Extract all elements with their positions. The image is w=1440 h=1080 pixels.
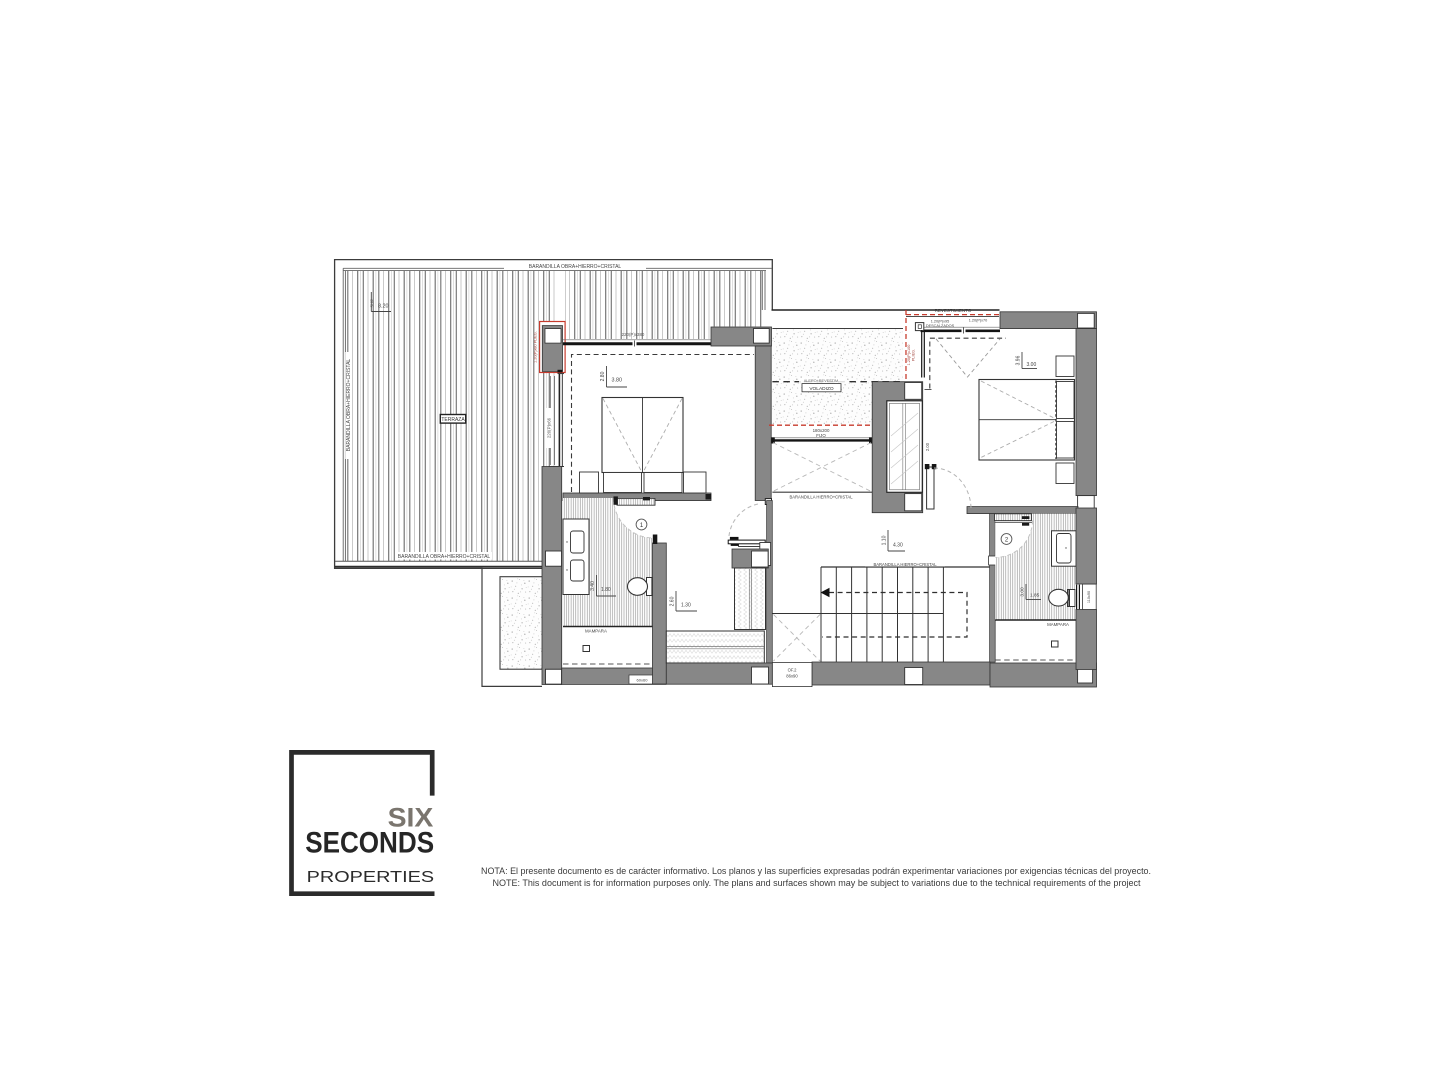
svg-text:8.20: 8.20	[378, 304, 389, 310]
svg-text:2.80: 2.80	[600, 371, 606, 381]
svg-text:BARANDILLA OBRA+HIERRO+CRISTAL: BARANDILLA OBRA+HIERRO+CRISTAL	[346, 359, 352, 452]
svg-text:4.30: 4.30	[893, 543, 903, 549]
svg-text:BARANDILLA HIERRO+CRISTAL: BARANDILLA HIERRO+CRISTAL	[873, 562, 937, 567]
svg-text:FIJO: FIJO	[816, 433, 826, 438]
svg-text:1.85: 1.85	[1030, 593, 1040, 599]
svg-text:1.20(P)x95: 1.20(P)x95	[931, 319, 950, 323]
svg-text:60x60: 60x60	[637, 678, 649, 683]
svg-text:3.00: 3.00	[1020, 587, 1026, 597]
svg-text:BARANDILLA OBRA+HIERRO+CRISTAL: BARANDILLA OBRA+HIERRO+CRISTAL	[529, 264, 622, 270]
svg-text:110x90: 110x90	[1087, 591, 1091, 603]
svg-text:MAMPARA: MAMPARA	[1047, 622, 1069, 627]
svg-text:1.80: 1.80	[601, 587, 611, 593]
svg-text:2.60: 2.60	[670, 596, 676, 606]
svg-text:SUP.: SUP.	[370, 298, 375, 307]
svg-text:NOTE: This document is for inf: NOTE: This document is for information p…	[493, 878, 1142, 888]
svg-text:3.80: 3.80	[612, 378, 623, 384]
svg-text:220(P)x380: 220(P)x380	[622, 332, 645, 337]
svg-text:1.30: 1.30	[681, 603, 691, 609]
svg-text:220(P)x66: 220(P)x66	[547, 417, 552, 438]
svg-text:REVESTIMIENTO: REVESTIMIENTO	[935, 308, 972, 313]
svg-text:PLIEG.: PLIEG.	[912, 349, 916, 361]
svg-text:TERRAZA: TERRAZA	[441, 417, 465, 423]
svg-text:PROPERTIES: PROPERTIES	[307, 869, 434, 886]
svg-text:ALERO+REVESTIM.: ALERO+REVESTIM.	[804, 379, 840, 383]
svg-text:1.10: 1.10	[882, 535, 888, 545]
svg-text:NOTA: El presente documento es: NOTA: El presente documento es de caráct…	[481, 866, 1151, 876]
svg-text:BARANDILLA HIERRO+CRISTAL: BARANDILLA HIERRO+CRISTAL	[789, 494, 853, 499]
svg-text:1.20(P)x70: 1.20(P)x70	[969, 318, 988, 322]
svg-text:OF.2: OF.2	[788, 668, 798, 673]
svg-text:BARANDILLA OBRA+HIERRO+CRISTAL: BARANDILLA OBRA+HIERRO+CRISTAL	[398, 554, 491, 560]
svg-text:SECONDS: SECONDS	[305, 827, 434, 860]
svg-text:2.00: 2.00	[925, 442, 930, 451]
svg-text:3.40: 3.40	[590, 581, 596, 591]
svg-text:1.20(P)x80 PLIEG.: 1.20(P)x80 PLIEG.	[534, 331, 538, 363]
svg-text:VOLADIZO: VOLADIZO	[809, 386, 834, 392]
svg-text:3.00: 3.00	[1027, 362, 1037, 368]
svg-text:3.96: 3.96	[1016, 355, 1022, 365]
svg-text:1.20(P)x100: 1.20(P)x100	[907, 345, 911, 366]
svg-text:86x90: 86x90	[786, 674, 798, 679]
svg-text:MAMPARA: MAMPARA	[585, 629, 607, 634]
